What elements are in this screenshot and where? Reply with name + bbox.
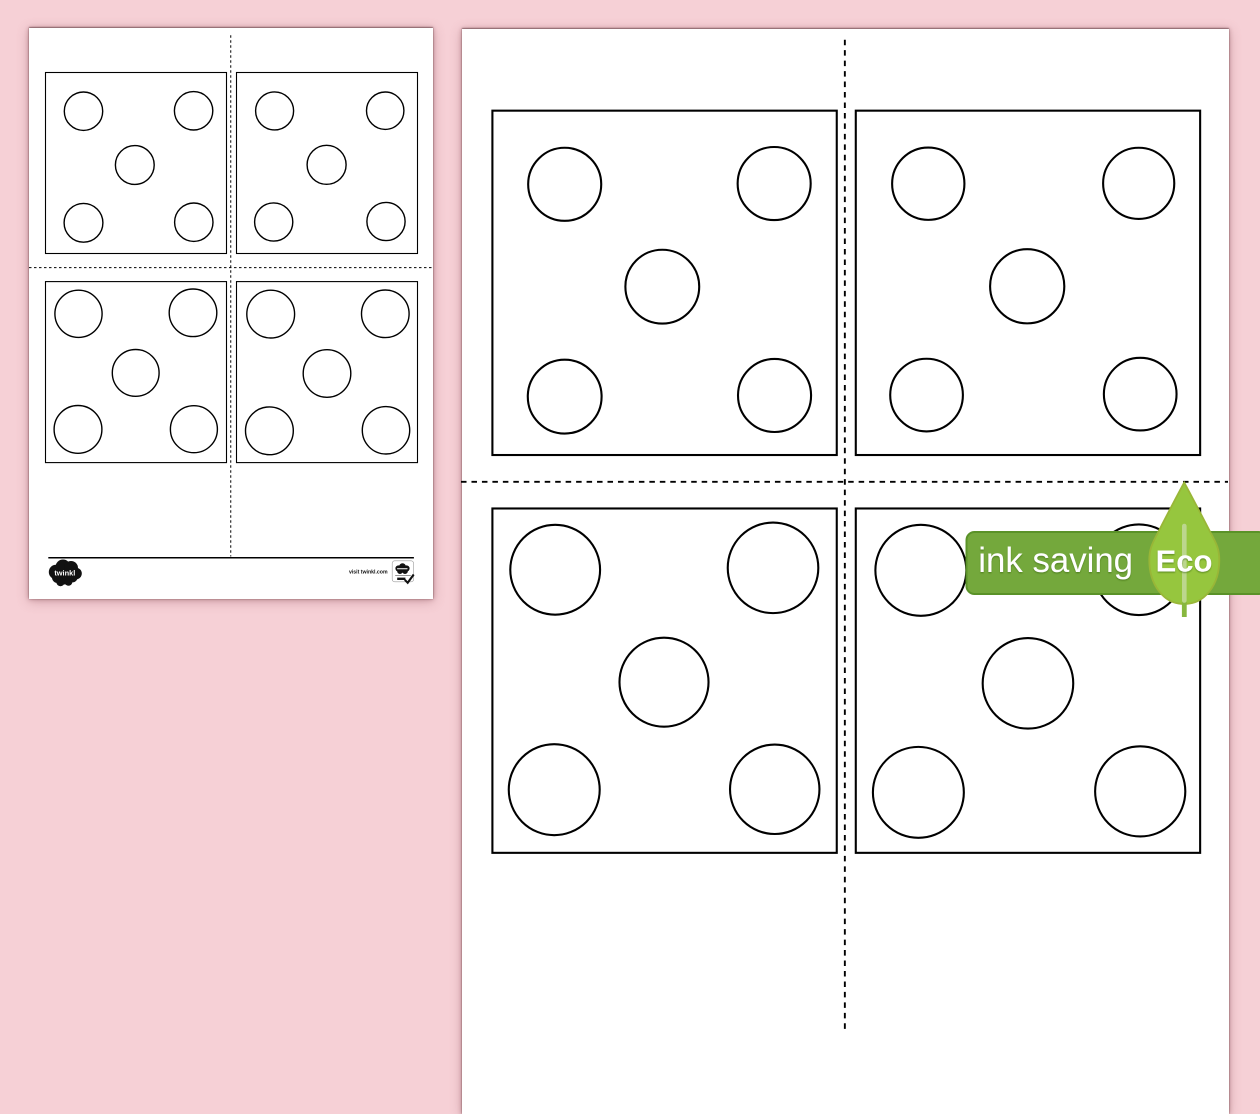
svg-text:twinkl: twinkl [54,568,75,577]
svg-text:visit twinkl.com: visit twinkl.com [349,569,388,575]
svg-text:ink saving: ink saving [978,541,1133,580]
svg-text:Eco: Eco [1156,544,1213,579]
